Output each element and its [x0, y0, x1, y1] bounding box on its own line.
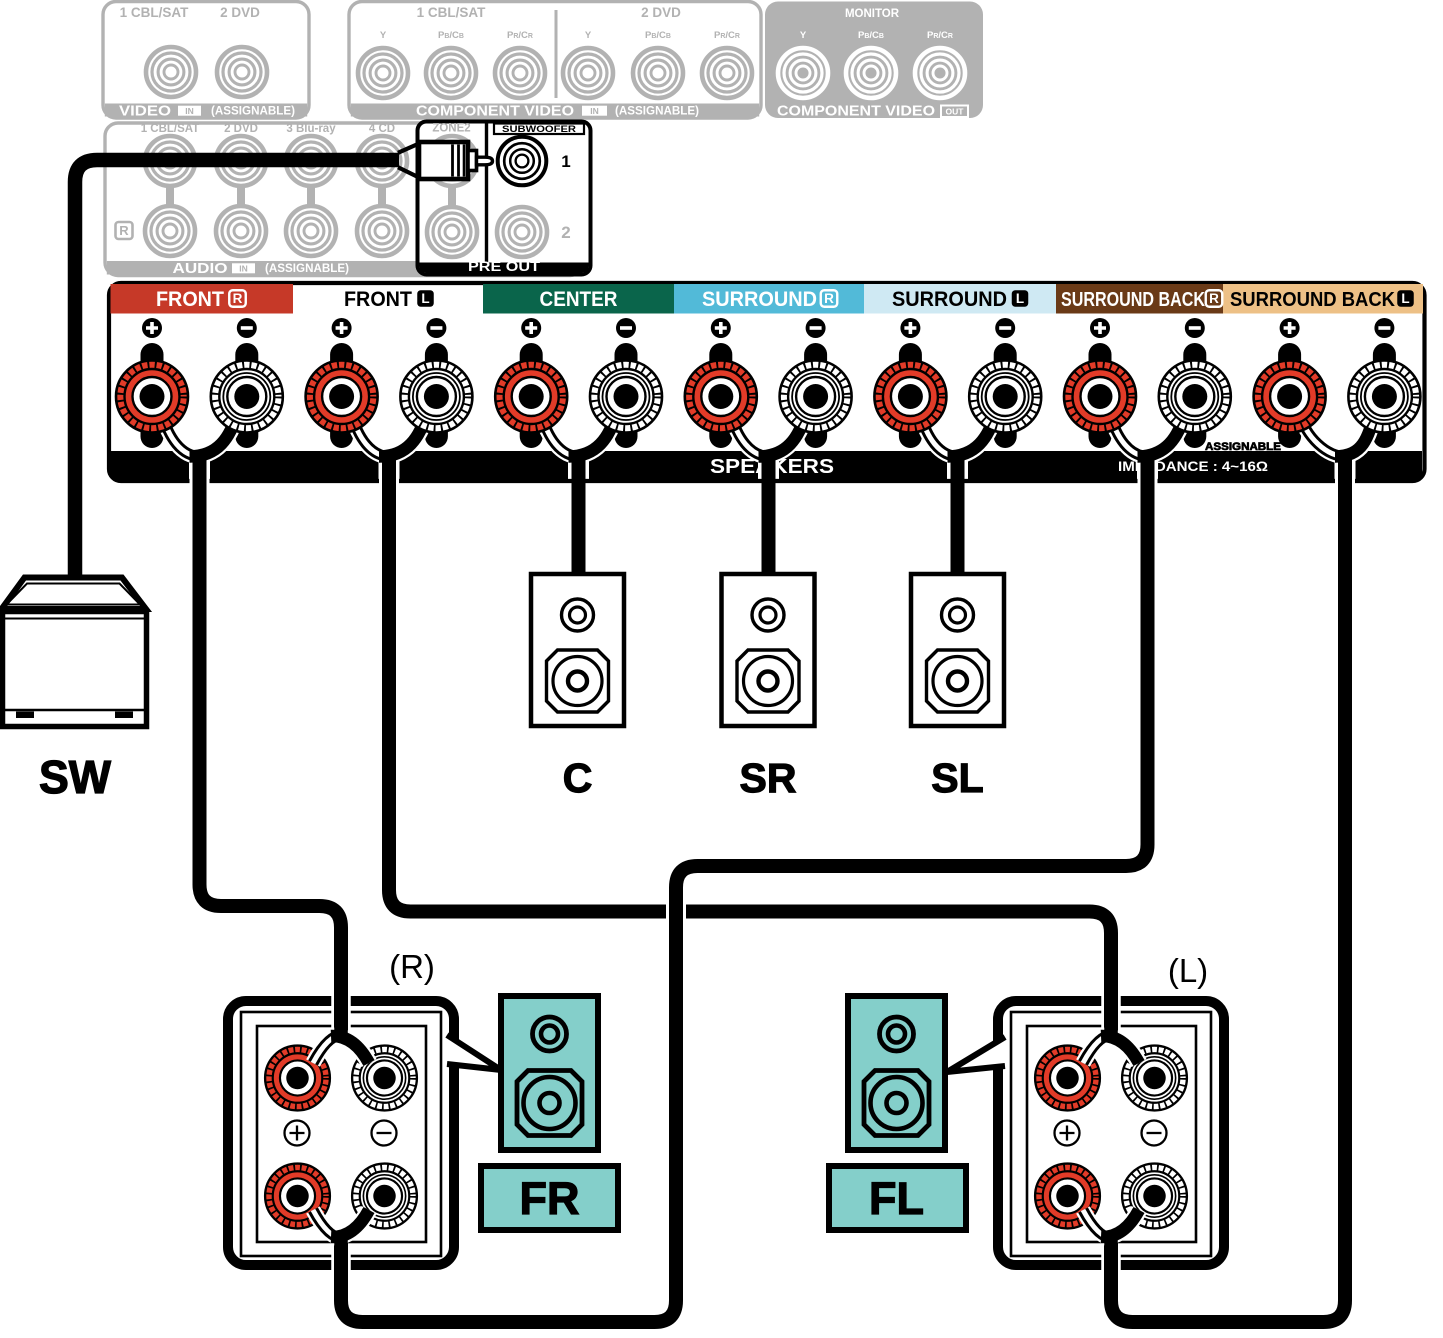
svg-text:Y: Y [585, 30, 592, 41]
svg-text:4 CD: 4 CD [369, 123, 395, 135]
svg-text:2 DVD: 2 DVD [641, 5, 681, 20]
svg-text:FRONT: FRONT [344, 288, 412, 311]
svg-text:OUT: OUT [946, 107, 965, 117]
svg-text:CENTER: CENTER [540, 288, 618, 311]
svg-text:L: L [1401, 291, 1409, 306]
svg-text:(ASSIGNABLE): (ASSIGNABLE) [615, 106, 699, 118]
svg-text:(ASSIGNABLE): (ASSIGNABLE) [265, 263, 349, 275]
svg-text:SL: SL [931, 755, 983, 801]
svg-text:SURROUND BACK: SURROUND BACK [1230, 289, 1396, 311]
svg-text:IN: IN [239, 264, 248, 274]
svg-text:R: R [233, 291, 243, 306]
svg-text:2 DVD: 2 DVD [224, 123, 258, 135]
svg-text:SURROUND: SURROUND [702, 288, 817, 311]
svg-text:1 CBL/SAT: 1 CBL/SAT [141, 123, 200, 135]
svg-text:FL: FL [869, 1173, 924, 1224]
svg-text:SURROUND BACK: SURROUND BACK [1061, 289, 1205, 311]
svg-text:2 DVD: 2 DVD [220, 5, 260, 20]
svg-text:L: L [421, 291, 429, 306]
svg-text:AUDIO: AUDIO [173, 261, 228, 277]
svg-text:3 Blu-ray: 3 Blu-ray [286, 123, 336, 135]
svg-text:Y: Y [380, 30, 387, 41]
svg-text:IN: IN [590, 106, 599, 116]
svg-text:FR: FR [520, 1173, 580, 1224]
svg-text:SUBWOOFER: SUBWOOFER [502, 124, 576, 135]
svg-text:SURROUND: SURROUND [892, 288, 1007, 311]
svg-text:R: R [1209, 291, 1219, 306]
svg-text:MONITOR: MONITOR [845, 8, 900, 20]
svg-text:(ASSIGNABLE): (ASSIGNABLE) [211, 106, 295, 118]
svg-text:R: R [119, 223, 129, 238]
svg-text:PRE OUT: PRE OUT [468, 259, 541, 274]
svg-text:SW: SW [39, 751, 112, 803]
svg-text:1 CBL/SAT: 1 CBL/SAT [417, 5, 487, 20]
svg-text:2: 2 [561, 223, 570, 242]
svg-text:COMPONENT VIDEO: COMPONENT VIDEO [416, 104, 574, 120]
svg-text:COMPONENT VIDEO: COMPONENT VIDEO [777, 104, 935, 120]
svg-text:SR: SR [740, 755, 797, 801]
svg-text:1: 1 [561, 152, 570, 171]
svg-text:ZONE2: ZONE2 [432, 123, 470, 135]
svg-text:C: C [563, 755, 593, 801]
svg-text:1 CBL/SAT: 1 CBL/SAT [120, 5, 190, 20]
svg-text:VIDEO: VIDEO [119, 104, 171, 120]
svg-text:(R): (R) [389, 948, 435, 985]
svg-text:(L): (L) [1168, 952, 1208, 989]
svg-text:Y: Y [800, 30, 807, 41]
svg-text:IN: IN [185, 106, 194, 116]
svg-text:L: L [1016, 291, 1024, 306]
svg-text:ASSIGNABLE: ASSIGNABLE [1205, 441, 1281, 453]
svg-text:R: R [824, 291, 834, 306]
svg-text:FRONT: FRONT [156, 288, 224, 311]
